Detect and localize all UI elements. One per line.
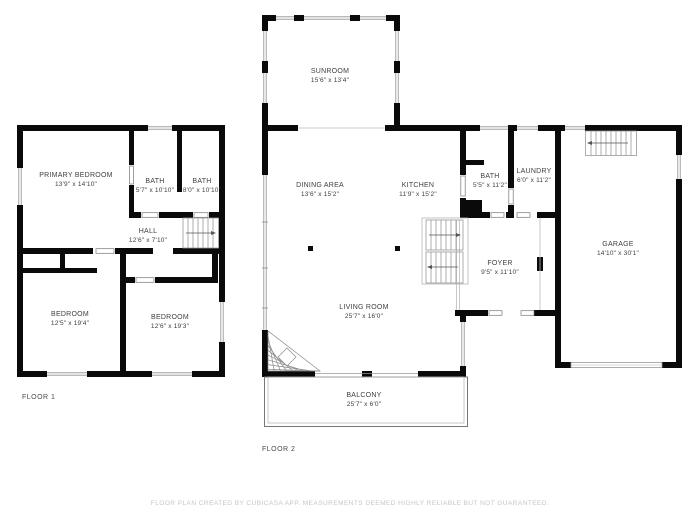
floor1-title: FLOOR 1 [22, 394, 55, 401]
room-label-garage: GARAGE 14'10" x 30'1" [597, 240, 639, 258]
room-dims: 5'7" x 10'10" [136, 186, 174, 195]
room-label-foyer: FOYER 9'5" x 11'10" [481, 259, 519, 277]
room-name: DINING AREA [296, 181, 344, 190]
room-dims: 8'0" x 10'10" [183, 186, 221, 195]
room-label-hall: HALL 12'6" x 7'10" [129, 227, 167, 245]
room-dims: 6'0" x 11'2" [517, 176, 551, 185]
room-dims: 9'5" x 11'10" [481, 268, 519, 277]
room-name: BATH [480, 172, 499, 181]
garage-door [571, 363, 662, 368]
floor2-stairs-garage [586, 131, 637, 156]
floorplan-drawing [0, 0, 700, 525]
room-dims: 12'6" x 19'3" [151, 322, 189, 331]
room-dims: 12'6" x 7'10" [129, 236, 167, 245]
room-dims: 5'5" x 11'2" [473, 181, 507, 190]
room-dims: 11'9" x 15'2" [399, 190, 437, 199]
floor1-stairs [183, 218, 219, 248]
room-name: BATH [192, 177, 211, 186]
room-dims: 12'5" x 19'4" [51, 319, 89, 328]
room-name: BEDROOM [51, 310, 89, 319]
room-label-dining-area: DINING AREA 13'6" x 15'2" [296, 181, 344, 199]
room-name: LAUNDRY [516, 167, 551, 176]
floor2-doors [461, 176, 534, 315]
room-dims: 14'10" x 30'1" [597, 249, 639, 258]
room-name: KITCHEN [402, 181, 434, 190]
floor2-title: FLOOR 2 [262, 446, 295, 453]
room-name: HALL [139, 227, 158, 236]
room-label-balcony: BALCONY 25'7" x 6'0" [346, 391, 381, 409]
room-name: LIVING ROOM [339, 303, 388, 312]
room-name: GARAGE [602, 240, 633, 249]
room-label-kitchen: KITCHEN 11'9" x 15'2" [399, 181, 437, 199]
floor2-stairs-main [422, 218, 468, 284]
room-name: BEDROOM [151, 313, 189, 322]
room-dims: 13'9" x 14'10" [55, 180, 97, 189]
room-dims: 13'6" x 15'2" [301, 190, 339, 199]
room-label-bedroom-a: BEDROOM 12'5" x 19'4" [51, 310, 89, 328]
room-label-living-room: LIVING ROOM 25'7" x 16'0" [339, 303, 388, 321]
room-name: FOYER [487, 259, 512, 268]
disclaimer-text: FLOOR PLAN CREATED BY CUBICASA APP. MEAS… [0, 500, 700, 507]
room-label-sunroom: SUNROOM 15'6" x 13'4" [311, 67, 349, 85]
floor2-thin-partitions [298, 128, 540, 374]
floor1-walls [17, 125, 225, 377]
fireplace [268, 331, 320, 371]
room-dims: 25'7" x 16'0" [345, 312, 383, 321]
room-label-laundry: LAUNDRY 6'0" x 11'2" [516, 167, 551, 185]
room-name: PRIMARY BEDROOM [39, 171, 113, 180]
room-name: BATH [145, 177, 164, 186]
room-dims: 15'6" x 13'4" [311, 76, 349, 85]
room-dims: 25'7" x 6'0" [347, 400, 381, 409]
floorplan-page: PRIMARY BEDROOM 13'9" x 14'10" BATH 5'7"… [0, 0, 700, 525]
room-label-bedroom-b: BEDROOM 12'6" x 19'3" [151, 313, 189, 331]
floor1-plan [17, 125, 225, 377]
room-name: BALCONY [346, 391, 381, 400]
room-label-primary-bedroom: PRIMARY BEDROOM 13'9" x 14'10" [39, 171, 113, 189]
room-name: SUNROOM [311, 67, 349, 76]
room-label-bath-a: BATH 5'7" x 10'10" [136, 177, 174, 195]
room-label-bath2: BATH 5'5" x 11'2" [473, 172, 507, 190]
room-label-bath-b: BATH 8'0" x 10'10" [183, 177, 221, 195]
